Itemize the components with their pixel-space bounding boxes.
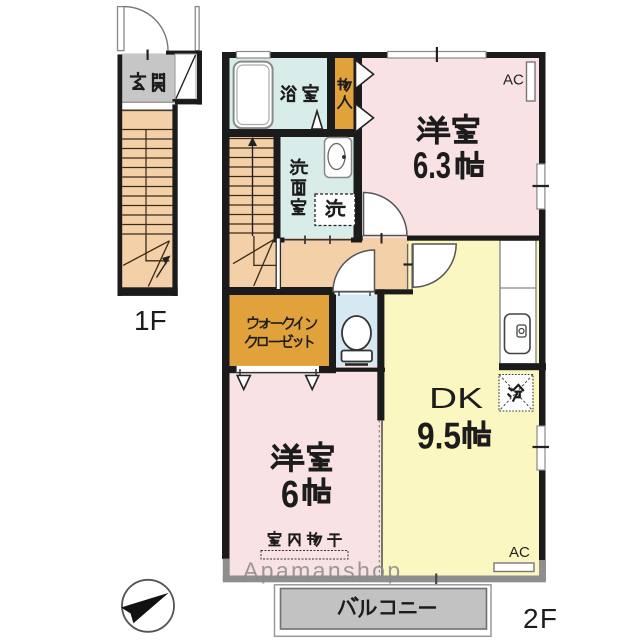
svg-text:9.5: 9.5 bbox=[417, 416, 461, 457]
svg-text:AC: AC bbox=[503, 72, 524, 89]
svg-text:Apamanshop: Apamanshop bbox=[243, 558, 403, 584]
svg-text:AC: AC bbox=[509, 544, 530, 561]
svg-text:1F: 1F bbox=[134, 305, 167, 336]
svg-text:6: 6 bbox=[281, 474, 299, 516]
svg-text:6.3: 6.3 bbox=[413, 145, 451, 186]
svg-text:DK: DK bbox=[429, 383, 484, 415]
svg-text:2F: 2F bbox=[523, 603, 557, 634]
